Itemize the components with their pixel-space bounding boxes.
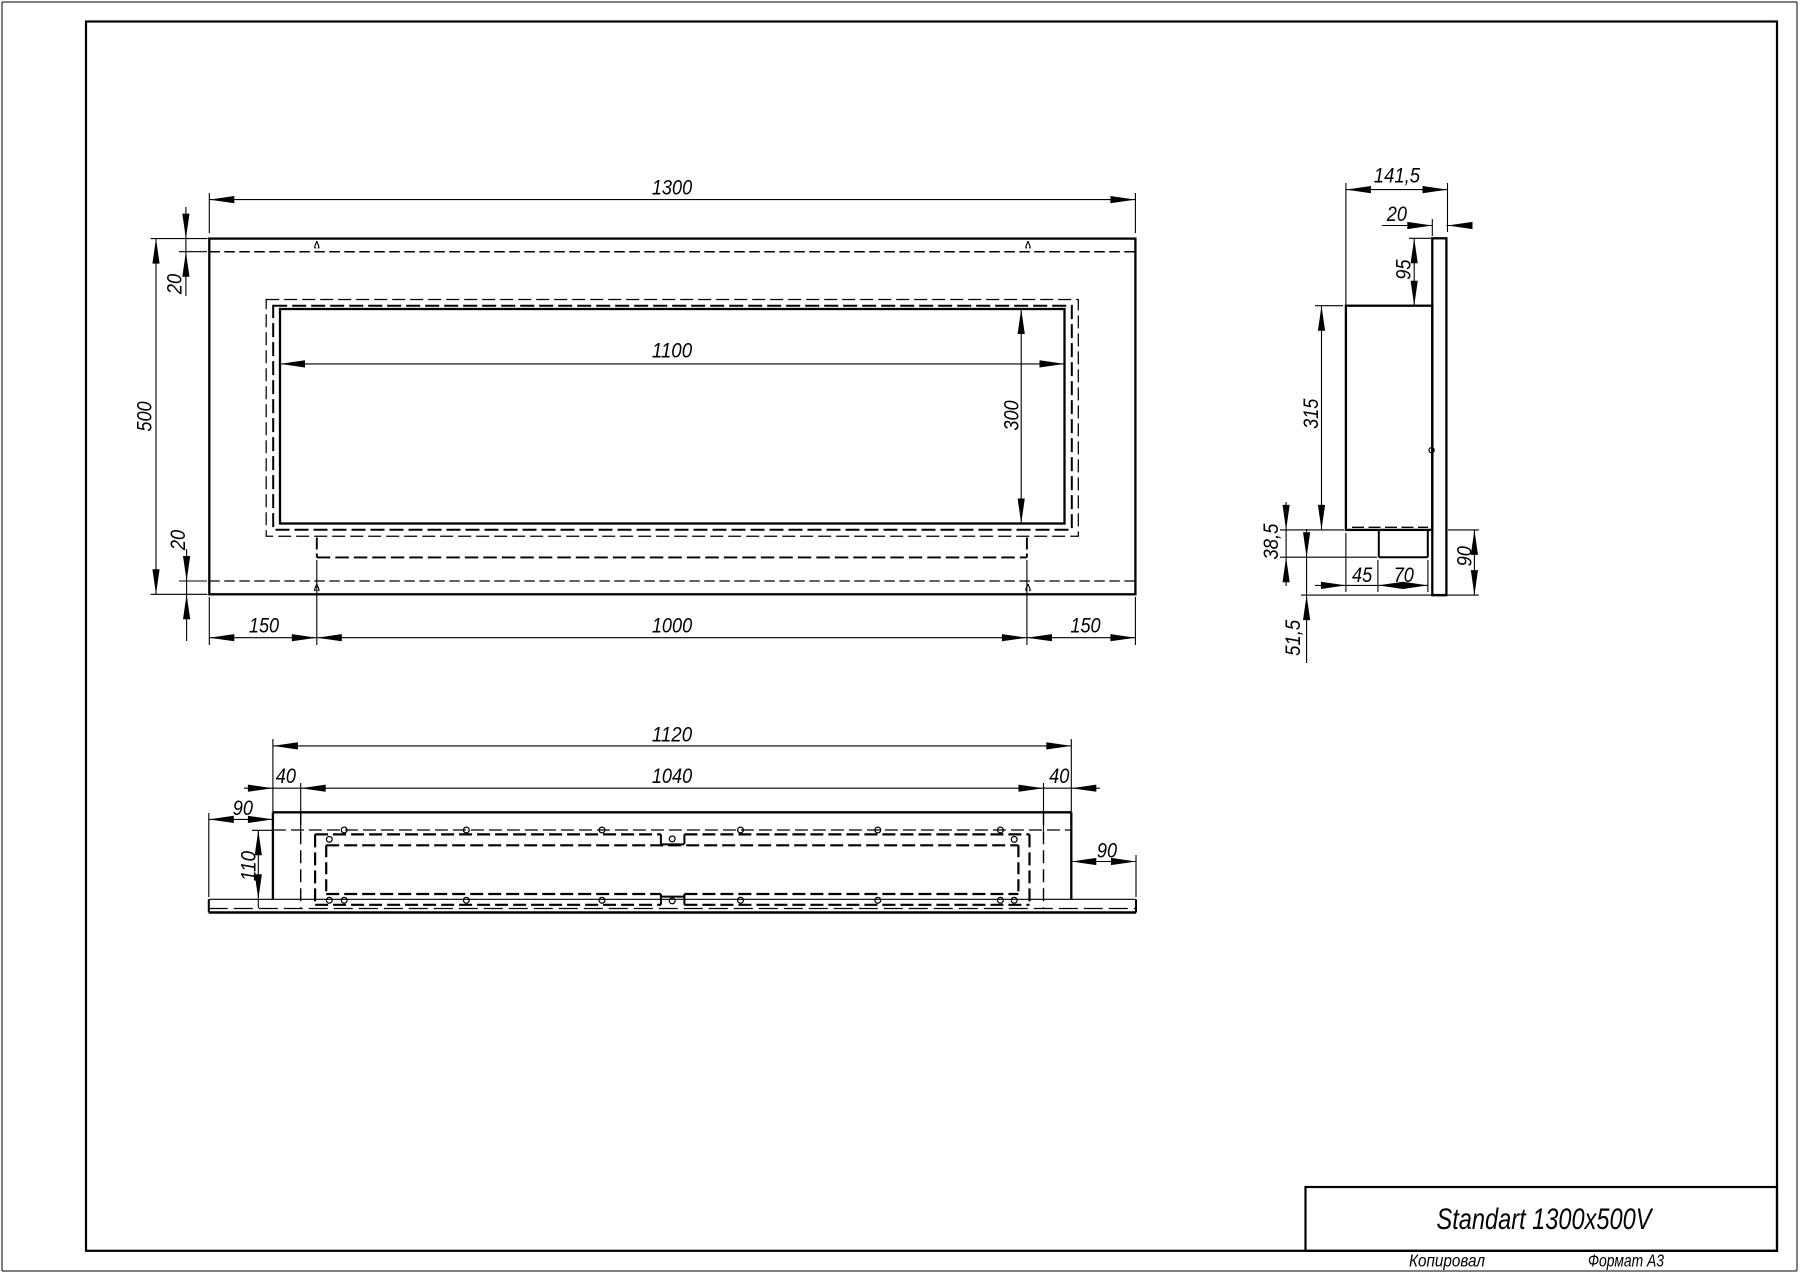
svg-text:90: 90	[1097, 840, 1117, 863]
svg-text:90: 90	[1453, 546, 1476, 566]
svg-text:500: 500	[134, 401, 157, 431]
svg-text:20: 20	[1386, 203, 1407, 226]
svg-text:38,5: 38,5	[1260, 523, 1283, 559]
svg-text:1040: 1040	[652, 765, 693, 788]
svg-text:70: 70	[1394, 564, 1414, 587]
svg-text:1000: 1000	[652, 615, 693, 638]
svg-text:40: 40	[276, 765, 296, 788]
svg-text:95: 95	[1392, 259, 1415, 279]
svg-text:110: 110	[237, 851, 260, 881]
svg-text:315: 315	[1300, 398, 1323, 428]
svg-text:141,5: 141,5	[1374, 165, 1420, 188]
svg-text:300: 300	[1000, 400, 1023, 430]
svg-text:Формат А3: Формат А3	[1588, 1250, 1664, 1270]
svg-text:150: 150	[1070, 615, 1100, 638]
svg-text:45: 45	[1352, 564, 1372, 587]
svg-text:150: 150	[249, 615, 279, 638]
svg-text:40: 40	[1049, 765, 1069, 788]
svg-text:20: 20	[164, 274, 187, 295]
svg-text:90: 90	[233, 797, 253, 820]
svg-text:1120: 1120	[652, 724, 693, 747]
svg-text:1300: 1300	[652, 177, 693, 200]
svg-text:Копировал: Копировал	[1409, 1250, 1485, 1270]
svg-text:51,5: 51,5	[1282, 619, 1305, 655]
svg-text:1100: 1100	[652, 340, 693, 363]
svg-text:20: 20	[167, 530, 190, 551]
svg-text:Standart 1300x500V: Standart 1300x500V	[1437, 1203, 1654, 1236]
